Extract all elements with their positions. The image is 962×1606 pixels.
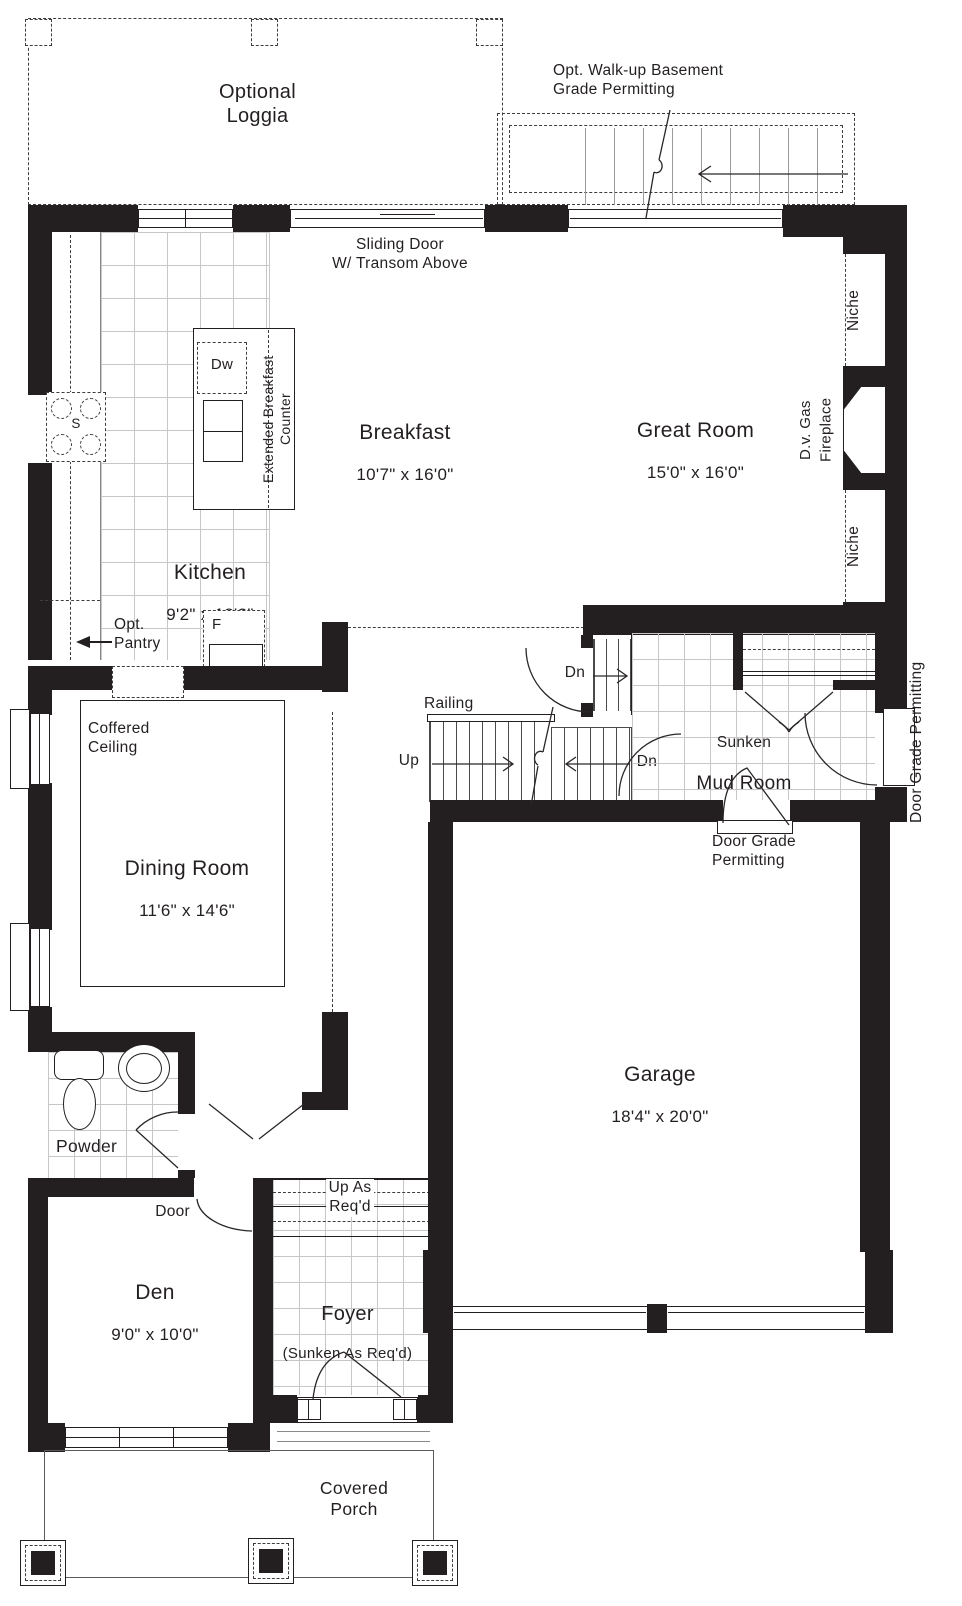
sliding-door-panel	[380, 214, 435, 215]
front-sidelight	[393, 1399, 417, 1420]
window-mullion	[185, 209, 186, 228]
window-sill	[10, 709, 30, 789]
porch-label: Covered Porch	[294, 1478, 414, 1521]
up-stair-treads	[429, 722, 546, 802]
door-grade-side-label: Door Grade Permitting	[908, 652, 946, 832]
wall	[253, 1178, 273, 1423]
den-label: Den 9'0" x 10'0"	[95, 1260, 215, 1365]
toilet-tank	[54, 1050, 104, 1080]
stove-burner	[51, 434, 72, 455]
closet-shelf	[743, 671, 875, 676]
porch-column-core	[259, 1549, 283, 1573]
wall	[833, 680, 875, 690]
niche-bottom-label: Niche	[845, 498, 885, 594]
dining-label: Dining Room 11'6" x 14'6"	[112, 836, 262, 941]
wall	[28, 687, 52, 715]
dn-stair-treads	[551, 727, 632, 802]
wall	[860, 822, 890, 1252]
wall	[178, 1032, 195, 1114]
dining-dims: 11'6" x 14'6"	[112, 901, 262, 922]
window-mullion	[119, 1427, 120, 1448]
wall	[843, 366, 885, 386]
door-grade-garage-label: Door Grade Permitting	[712, 833, 817, 871]
den-dims: 9'0" x 10'0"	[95, 1325, 215, 1346]
foyer-step-dashed	[273, 1221, 430, 1222]
great-room-dims: 15'0" x 16'0"	[618, 463, 773, 484]
kitchen-name: Kitchen	[145, 560, 275, 586]
dining-name: Dining Room	[112, 856, 262, 882]
foyer-note: (Sunken As Req'd)	[275, 1345, 420, 1363]
pantry-arrow-shaft	[88, 641, 112, 643]
wall	[485, 205, 568, 232]
window-sill	[10, 923, 30, 1011]
counter-label: Extended Breakfast Counter	[260, 332, 288, 506]
garage-dims: 18'4" x 20'0"	[595, 1107, 725, 1128]
porch-column-core	[423, 1551, 447, 1575]
wall	[273, 1395, 297, 1423]
garage-name: Garage	[595, 1062, 725, 1088]
wall	[430, 800, 723, 822]
walkup-door-line	[570, 218, 781, 219]
wall	[28, 1007, 52, 1032]
up-as-reqd-text: Up As Req'd	[326, 1179, 375, 1217]
toilet-bowl	[63, 1078, 96, 1130]
mud-garage-door-gap	[723, 802, 790, 822]
wall	[302, 1092, 348, 1110]
wall	[865, 1250, 893, 1333]
foyer-name: Foyer	[275, 1302, 420, 1326]
mud-garage-step	[717, 820, 793, 834]
mud-room-name: Mud Room	[688, 772, 800, 795]
foyer-label: Foyer (Sunken As Req'd)	[275, 1282, 420, 1383]
sliding-door-track	[295, 218, 483, 219]
great-room-name: Great Room	[618, 418, 773, 444]
mud-room-label: Sunken Mud Room	[688, 714, 800, 815]
mud-room-prefix: Sunken	[688, 734, 800, 753]
wall	[843, 474, 885, 490]
powder-label: Powder	[56, 1136, 151, 1157]
wall	[28, 205, 138, 232]
great-room-label: Great Room 15'0" x 16'0"	[618, 398, 773, 503]
sink-basin	[126, 1053, 162, 1084]
wall	[28, 232, 52, 395]
french-door-arc	[197, 1199, 252, 1231]
front-sidelight	[297, 1399, 321, 1420]
railing-label: Railing	[424, 695, 486, 714]
wall	[428, 1333, 453, 1423]
wall	[733, 633, 743, 690]
hall-closet-doors	[209, 1104, 304, 1139]
breakfast-label: Breakfast 10'7" x 16'0"	[335, 400, 475, 505]
floor-plan: Optional Loggia Opt. Walk-up Basement Gr…	[0, 0, 962, 1606]
walkup-stair-treads	[585, 128, 843, 205]
sidelight-mullion	[308, 1399, 309, 1420]
loggia-column	[476, 19, 503, 46]
garage-door-line	[454, 1312, 646, 1313]
wall	[228, 1423, 270, 1452]
front-step	[277, 1441, 430, 1442]
wall	[233, 205, 290, 232]
wall	[843, 232, 885, 254]
wall	[322, 1012, 348, 1094]
cased-opening-line	[348, 627, 584, 628]
pantry-cabinet	[112, 666, 184, 698]
wall	[581, 703, 593, 717]
loggia-column	[251, 19, 278, 46]
stair-railing	[427, 714, 555, 722]
wall	[184, 666, 330, 690]
wall	[28, 1423, 65, 1452]
fridge-label: F	[212, 616, 242, 634]
wall	[178, 1170, 195, 1178]
wall	[423, 1250, 453, 1333]
breakfast-dims: 10'7" x 16'0"	[335, 465, 475, 486]
stove-label: S	[46, 416, 106, 432]
garage-door	[452, 1306, 648, 1330]
wall	[581, 635, 593, 648]
mud-room-edge	[631, 635, 632, 715]
window-mullion	[173, 1427, 174, 1448]
wall	[875, 632, 907, 713]
closet-rod	[743, 649, 875, 650]
niche-top-label: Niche	[845, 262, 885, 358]
window-mullion	[39, 929, 40, 1006]
walkup-basement-label: Opt. Walk-up Basement Grade Permitting	[553, 62, 738, 100]
fireplace-label: D.v. Gas Fireplace	[796, 382, 842, 478]
window	[30, 928, 50, 1007]
foyer-step	[273, 1236, 430, 1237]
island-cabinet-divider	[204, 431, 242, 432]
garage-label: Garage 18'4" x 20'0"	[595, 1042, 725, 1147]
window	[30, 713, 50, 785]
coffered-label: Coffered Ceiling	[88, 720, 173, 758]
up-as-reqd-label: Up As Req'd	[300, 1179, 400, 1217]
den-name: Den	[95, 1280, 215, 1306]
french-door-label: French Door	[118, 1184, 190, 1222]
sidelight-mullion	[404, 1399, 405, 1420]
stairs-dn-basement-label: Dn	[560, 664, 590, 683]
porch-column-core	[31, 1551, 55, 1575]
front-step	[277, 1431, 430, 1432]
wall	[28, 783, 52, 930]
loggia-column	[25, 19, 52, 46]
loggia-label: Optional Loggia	[200, 80, 315, 129]
garage-door	[666, 1306, 866, 1330]
wall	[28, 1197, 48, 1423]
stove-burner	[80, 434, 101, 455]
window-mullion	[66, 1437, 227, 1438]
basement-stair-treads	[593, 639, 631, 711]
garage-center-post	[647, 1304, 667, 1333]
window-mullion	[39, 714, 40, 784]
wall	[885, 205, 907, 635]
wall	[322, 622, 348, 692]
dining-open-edge	[332, 712, 333, 1012]
pantry-dash-line	[40, 600, 100, 601]
wall	[583, 605, 907, 635]
wall	[428, 822, 453, 1252]
wall	[28, 463, 52, 660]
dishwasher-label: Dw	[197, 356, 247, 374]
pantry-label: Opt. Pantry	[114, 616, 192, 654]
wall	[875, 787, 907, 822]
stairs-up-label: Up	[392, 752, 426, 771]
garage-door-line	[668, 1312, 864, 1313]
breakfast-name: Breakfast	[335, 420, 475, 446]
sliding-door-label: Sliding Door W/ Transom Above	[325, 236, 475, 274]
